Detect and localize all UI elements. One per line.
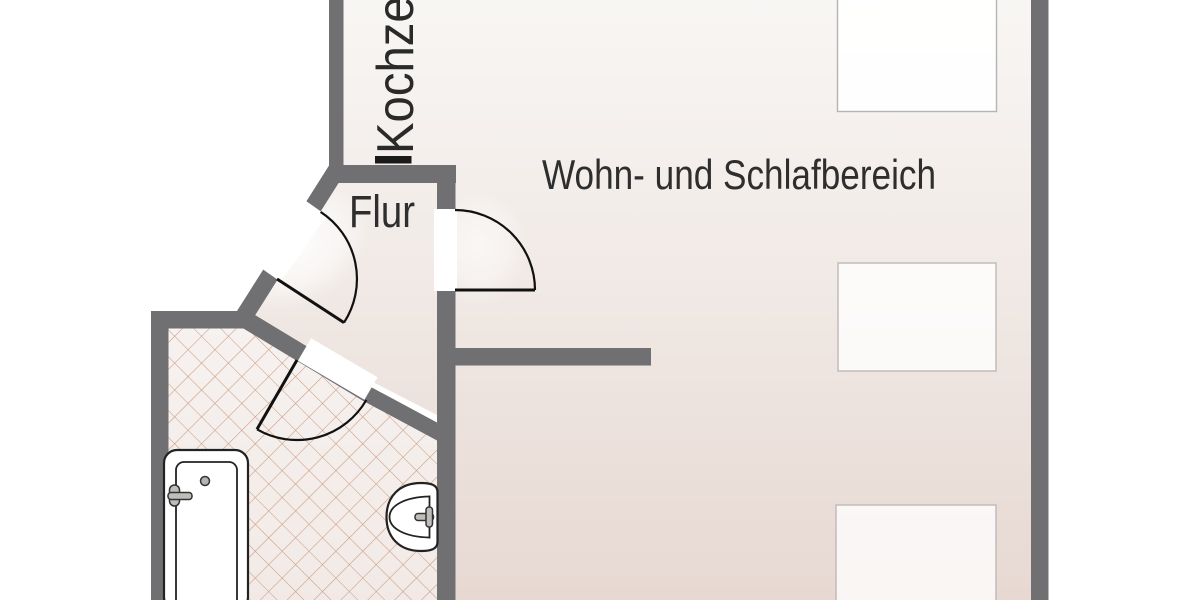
svg-text:Kochzeile: Kochzeile: [367, 0, 425, 154]
svg-text:Flur: Flur: [349, 186, 415, 237]
svg-text:Wohn- und Schlafbereich: Wohn- und Schlafbereich: [542, 151, 936, 198]
